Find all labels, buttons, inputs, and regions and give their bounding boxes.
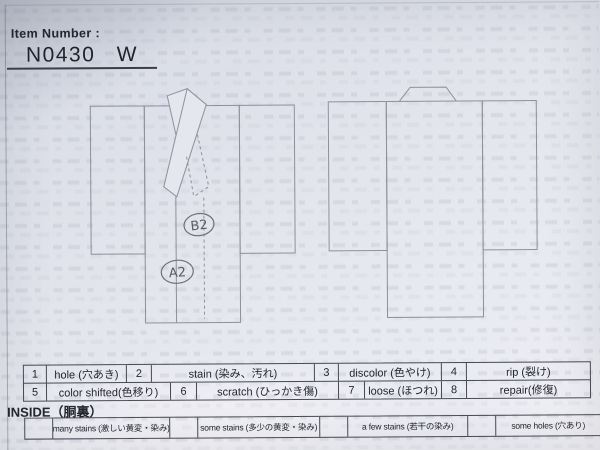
- defect-code-cell: 3: [315, 364, 339, 381]
- kimono-front-hidden-collar-inner-edge: [187, 157, 194, 197]
- inside-option-label: some holes (穴あり): [496, 415, 600, 436]
- checkbox-cell: [170, 418, 198, 438]
- inside-option-label: a few stains (若干の染み): [348, 416, 468, 437]
- defect-label-cell: scratch (ひっかき傷): [197, 382, 339, 400]
- kimono-back-right-sleeve: [482, 101, 537, 250]
- annotation-a2-text: A2: [168, 265, 186, 281]
- defect-code-cell: 6: [171, 383, 197, 400]
- defect-label-cell: repair(修復): [467, 380, 590, 398]
- checkbox-cell: [25, 419, 53, 439]
- checkbox-cell: [320, 417, 348, 437]
- kimono-back-body: [386, 101, 483, 318]
- defect-code-cell: 2: [127, 365, 152, 382]
- defect-code-cell: 5: [24, 384, 47, 401]
- inside-option-label: many stains (激しい黄変・染み): [53, 418, 170, 439]
- defect-code-cell: 1: [24, 366, 47, 383]
- defect-code-cell: 4: [442, 363, 467, 380]
- defect-code-cell: 8: [442, 381, 467, 398]
- kimono-front-under-panel-line: [204, 198, 205, 319]
- inside-condition-table: many stains (激しい黄変・染み) some stains (多少の黄…: [24, 414, 600, 440]
- inspection-sheet-photo: Item Number : N0430 W: [0, 0, 600, 450]
- inside-option-label: some stains (多少の黄変・染み): [198, 417, 320, 438]
- defect-label-cell: discolor (色やけ): [339, 363, 442, 381]
- inside-table-row: many stains (激しい黄変・染み) some stains (多少の黄…: [25, 415, 600, 439]
- checkbox-cell: [468, 416, 496, 436]
- defect-label-cell: color shifted(色移り): [47, 383, 171, 401]
- annotation-b2-text: B2: [190, 218, 209, 235]
- defect-label-cell: hole (穴あき): [47, 365, 127, 382]
- defect-code-cell: 7: [339, 382, 365, 399]
- defect-label-cell: stain (染み、汚れ): [152, 364, 315, 382]
- defect-legend-table: 1 hole (穴あき) 2 stain (染み、汚れ) 3 discolor …: [23, 361, 591, 401]
- kimono-back-left-sleeve: [328, 101, 387, 250]
- kimono-front-hidden-collar-edge: [193, 135, 208, 197]
- defect-label-cell: rip (裂け): [467, 362, 590, 380]
- kimono-front-right-sleeve: [239, 105, 295, 253]
- kimono-front-left-sleeve: [90, 106, 145, 254]
- kimono-back-collar: [399, 87, 456, 101]
- defect-label-cell: loose (ほつれ): [365, 381, 442, 398]
- defect-table-row: 5 color shifted(色移り) 6 scratch (ひっかき傷) 7…: [24, 379, 590, 400]
